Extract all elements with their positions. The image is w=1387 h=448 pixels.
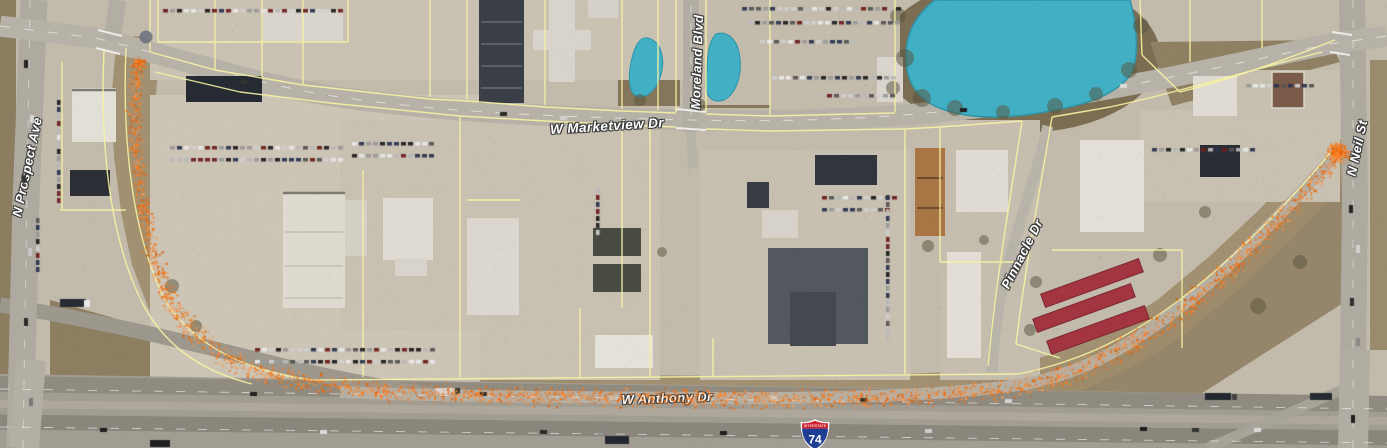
- shield-number: 74: [808, 432, 822, 446]
- aerial-map: W Marketview Dr Moreland Blvd N Prospect…: [0, 0, 1387, 448]
- street-label-w-anthony-dr: W Anthony Dr: [621, 389, 712, 407]
- shield-top-text: INTERSTATE: [804, 424, 827, 428]
- map-marker-dot: [140, 31, 153, 44]
- interstate-74-shield: INTERSTATE 74: [800, 418, 830, 448]
